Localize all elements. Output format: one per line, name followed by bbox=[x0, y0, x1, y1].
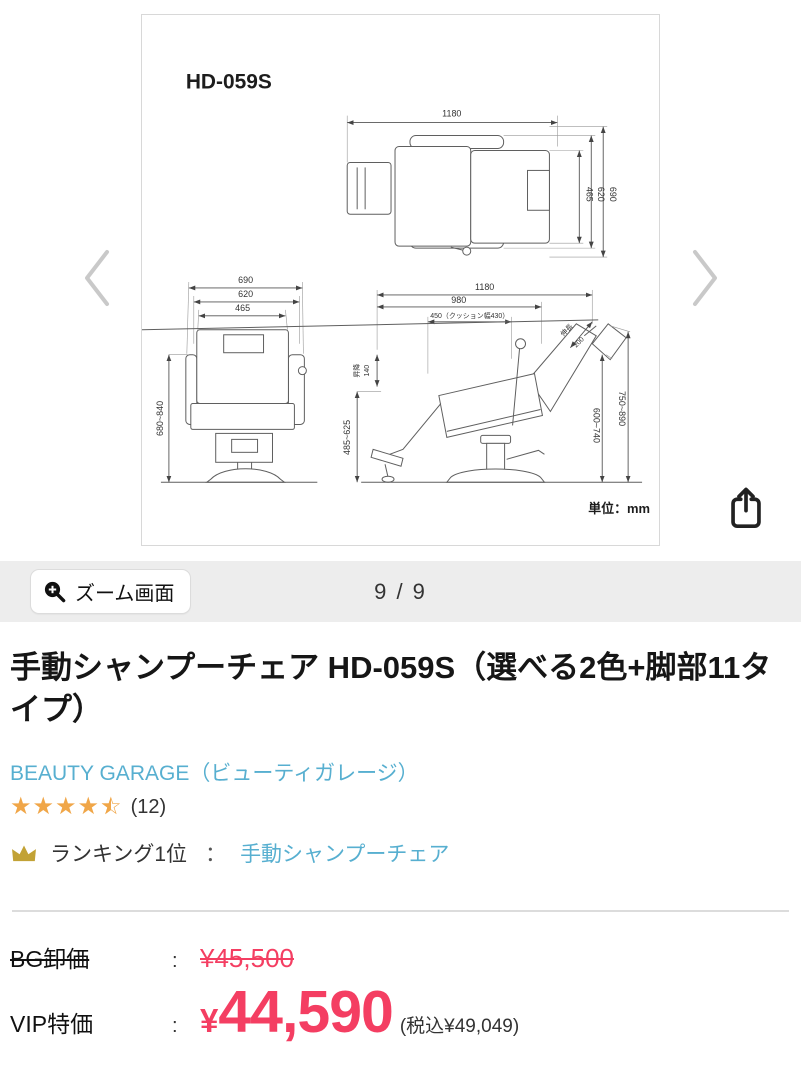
carousel-next-button[interactable] bbox=[684, 244, 728, 314]
svg-text:690: 690 bbox=[238, 275, 253, 285]
product-info-section: 手動シャンプーチェア HD-059S（選べる2色+脚部11タイプ） BEAUTY… bbox=[0, 647, 801, 1044]
svg-text:465: 465 bbox=[235, 303, 250, 313]
wholesale-price-value: ¥45,500 bbox=[200, 943, 791, 974]
svg-text:140: 140 bbox=[364, 365, 371, 377]
svg-text:600~740: 600~740 bbox=[591, 408, 601, 443]
magnifier-plus-icon bbox=[43, 580, 66, 603]
wholesale-colon: : bbox=[172, 950, 200, 973]
price-table: BG卸価 : ¥45,500 VIP特価 : ¥ 44,590 (税込¥49,0… bbox=[10, 940, 791, 1044]
product-diagram-image[interactable]: HD-059S 1180 bbox=[141, 14, 660, 546]
svg-text:450（クッション幅430）: 450（クッション幅430） bbox=[430, 311, 509, 320]
carousel-prev-button[interactable] bbox=[74, 244, 118, 314]
front-view: 690 620 465 680~840 bbox=[155, 275, 317, 482]
crown-icon bbox=[10, 842, 38, 865]
svg-text:1180: 1180 bbox=[475, 282, 494, 292]
svg-text:680~840: 680~840 bbox=[155, 401, 165, 436]
share-icon bbox=[725, 485, 767, 531]
wholesale-price-label: BG卸価 bbox=[10, 940, 172, 974]
brand-link[interactable]: BEAUTY GARAGE（ビューティガレージ） bbox=[10, 757, 419, 787]
ranking-category-link[interactable]: 手動シャンプーチェア bbox=[240, 838, 449, 868]
svg-text:620: 620 bbox=[238, 289, 253, 299]
star-icon: ★ bbox=[33, 793, 56, 820]
star-icon: ★ bbox=[55, 793, 78, 820]
vip-colon: : bbox=[172, 1015, 200, 1038]
wholesale-price-row: BG卸価 : ¥45,500 bbox=[10, 940, 791, 974]
vip-amount: 44,590 bbox=[218, 982, 392, 1044]
product-image-gallery: HD-059S 1180 bbox=[0, 0, 801, 561]
star-icon: ★ bbox=[10, 793, 33, 820]
share-button[interactable] bbox=[722, 484, 770, 534]
section-divider bbox=[12, 910, 789, 912]
zoom-button-label: ズーム画面 bbox=[75, 577, 174, 606]
vip-price-row: VIP特価 : ¥ 44,590 (税込¥49,049) bbox=[10, 982, 791, 1044]
chevron-left-icon bbox=[79, 247, 113, 309]
svg-text:465: 465 bbox=[584, 187, 594, 202]
vip-currency-symbol: ¥ bbox=[200, 1002, 218, 1040]
chevron-right-icon bbox=[689, 247, 723, 309]
zoom-screen-button[interactable]: ズーム画面 bbox=[30, 569, 191, 614]
svg-text:690: 690 bbox=[608, 187, 618, 202]
diagram-unit-label: 単位：mm bbox=[588, 501, 650, 516]
rating-link[interactable]: ★★★★☆★ (12) bbox=[10, 795, 791, 819]
review-count: (12) bbox=[131, 796, 167, 819]
diagram-model-label: HD-059S bbox=[186, 71, 272, 94]
svg-text:昇降: 昇降 bbox=[352, 364, 361, 378]
vip-price-value: ¥ 44,590 (税込¥49,049) bbox=[200, 982, 791, 1044]
svg-text:620: 620 bbox=[596, 187, 606, 202]
tax-included-note: (税込¥49,049) bbox=[400, 1011, 519, 1038]
star-half-icon: ☆★ bbox=[100, 795, 123, 819]
technical-drawing: HD-059S 1180 bbox=[142, 15, 659, 545]
svg-text:485~625: 485~625 bbox=[342, 420, 352, 455]
svg-text:1180: 1180 bbox=[442, 109, 461, 119]
star-icon: ★ bbox=[78, 793, 101, 820]
gallery-toolbar: ズーム画面 9 / 9 bbox=[0, 561, 801, 622]
top-view: 1180 465 62 bbox=[347, 109, 618, 257]
svg-text:980: 980 bbox=[451, 295, 466, 305]
svg-text:750~890: 750~890 bbox=[617, 391, 627, 426]
vip-price-label: VIP特価 bbox=[10, 1005, 172, 1039]
product-title: 手動シャンプーチェア HD-059S（選べる2色+脚部11タイプ） bbox=[10, 647, 791, 730]
ranking-label: ランキング1位 bbox=[50, 838, 187, 868]
ranking-row: ランキング1位 ： 手動シャンプーチェア bbox=[10, 838, 791, 868]
star-rating: ★★★★☆★ bbox=[10, 795, 123, 819]
ranking-separator: ： bbox=[205, 838, 226, 868]
